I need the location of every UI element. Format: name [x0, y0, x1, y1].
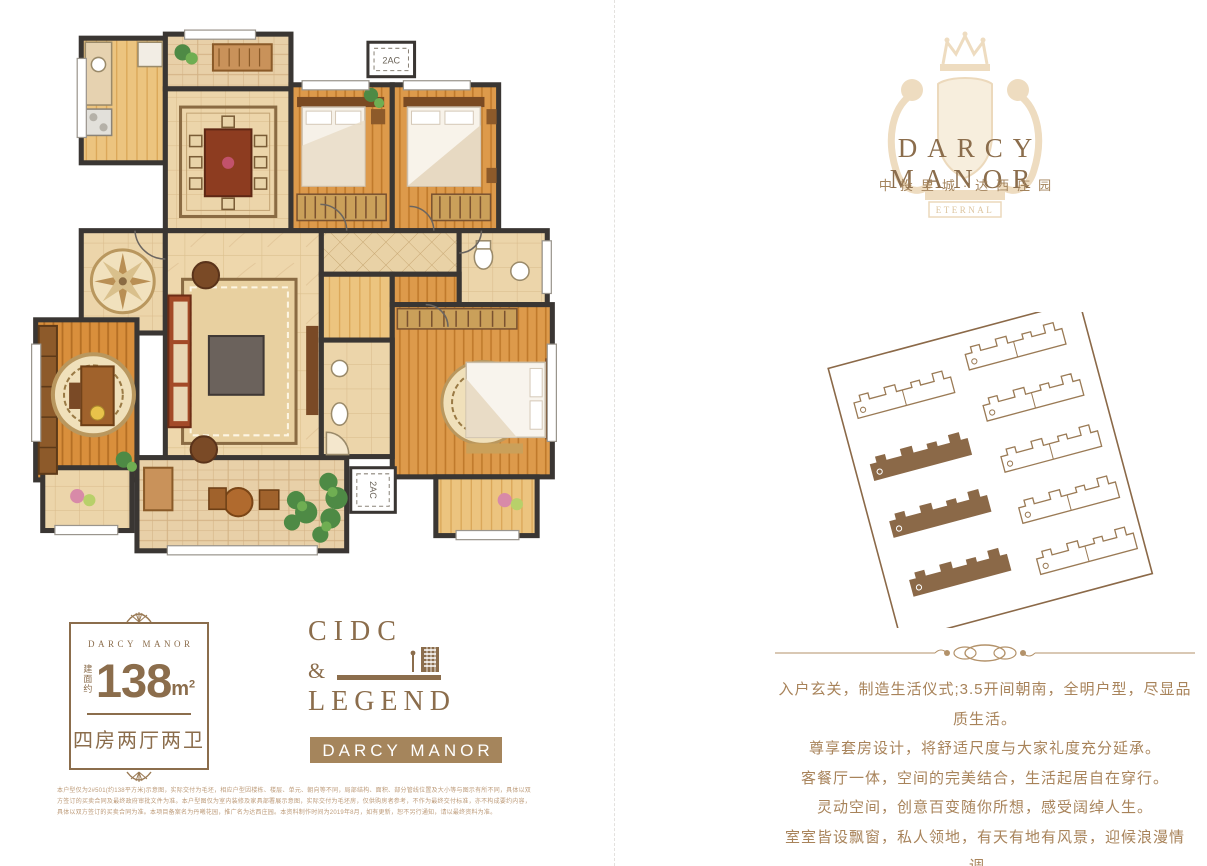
- logo-subtitle: 中投里城·达西庄园: [815, 175, 1115, 194]
- unit-card: DARCY MANOR 建面约 138 m2 四房两厅两卫: [69, 622, 209, 770]
- compass-medallion: [91, 250, 154, 313]
- ampersand: &: [308, 660, 325, 682]
- site-plan: [818, 312, 1162, 628]
- area-value: 138: [96, 657, 171, 704]
- lamppost-icon: [411, 651, 416, 672]
- divider-ornament-icon: [775, 642, 1195, 664]
- room-bathroom-1: [459, 231, 547, 305]
- unit-card-divider: [87, 713, 191, 715]
- page-fold-line: [614, 0, 615, 866]
- darcy-manor-ribbon: DARCY MANOR: [310, 737, 502, 763]
- brochure-page: 2AC 2AC: [0, 0, 1207, 866]
- ground-bar: [337, 675, 441, 680]
- brand-logo: ETERNAL DARCY MANOR 中投里城·达西庄园: [815, 30, 1115, 240]
- crest-motto: ETERNAL: [936, 205, 995, 215]
- cidc-legend-block: CIDC & LEGEND: [308, 616, 518, 718]
- unit-card-area: 建面约 138 m2: [71, 655, 207, 705]
- card-ornament-top-icon: [124, 611, 154, 623]
- room-corridor: [321, 231, 459, 275]
- building-icon: [407, 645, 441, 675]
- description-line: 尊享套房设计，将舒适尺度与大家礼度充分延承。: [775, 734, 1195, 764]
- ac-label-bottom: 2AC: [368, 481, 378, 499]
- description-line: 入户玄关，制造生活仪式;3.5开间朝南，全明户型，尽显品质生活。: [775, 675, 1195, 734]
- disclaimer-text: 本户型仅为2#501(约138平方米)示意图，实际交付为毛坯，相应户型因楼栋、楼…: [57, 786, 531, 819]
- area-unit: m2: [171, 678, 195, 701]
- ac-label-top: 2AC: [382, 56, 400, 66]
- area-prefix: 建面约: [83, 665, 93, 695]
- living-set: [168, 262, 318, 463]
- floor-plan: 2AC 2AC: [30, 24, 558, 566]
- description-line: 室室皆设飘窗，私人领地，有天有地有风景，迎候浪漫情调。: [775, 823, 1195, 866]
- unit-card-layout: 四房两厅两卫: [71, 724, 207, 753]
- legend-word: LEGEND: [308, 686, 518, 718]
- card-ornament-bottom-icon: [124, 771, 154, 783]
- description-line: 客餐厅一体，空间的完美结合，生活起居自在穿行。: [775, 764, 1195, 794]
- room-hall: [392, 274, 459, 304]
- unit-card-brand: DARCY MANOR: [71, 639, 207, 649]
- cidc-word: CIDC: [308, 616, 518, 648]
- room-closet: [321, 274, 392, 340]
- description-block: 入户玄关，制造生活仪式;3.5开间朝南，全明户型，尽显品质生活。 尊享套房设计，…: [775, 642, 1195, 866]
- description-line: 灵动空间，创意百变随你所想，感受阔绰人生。: [775, 793, 1195, 823]
